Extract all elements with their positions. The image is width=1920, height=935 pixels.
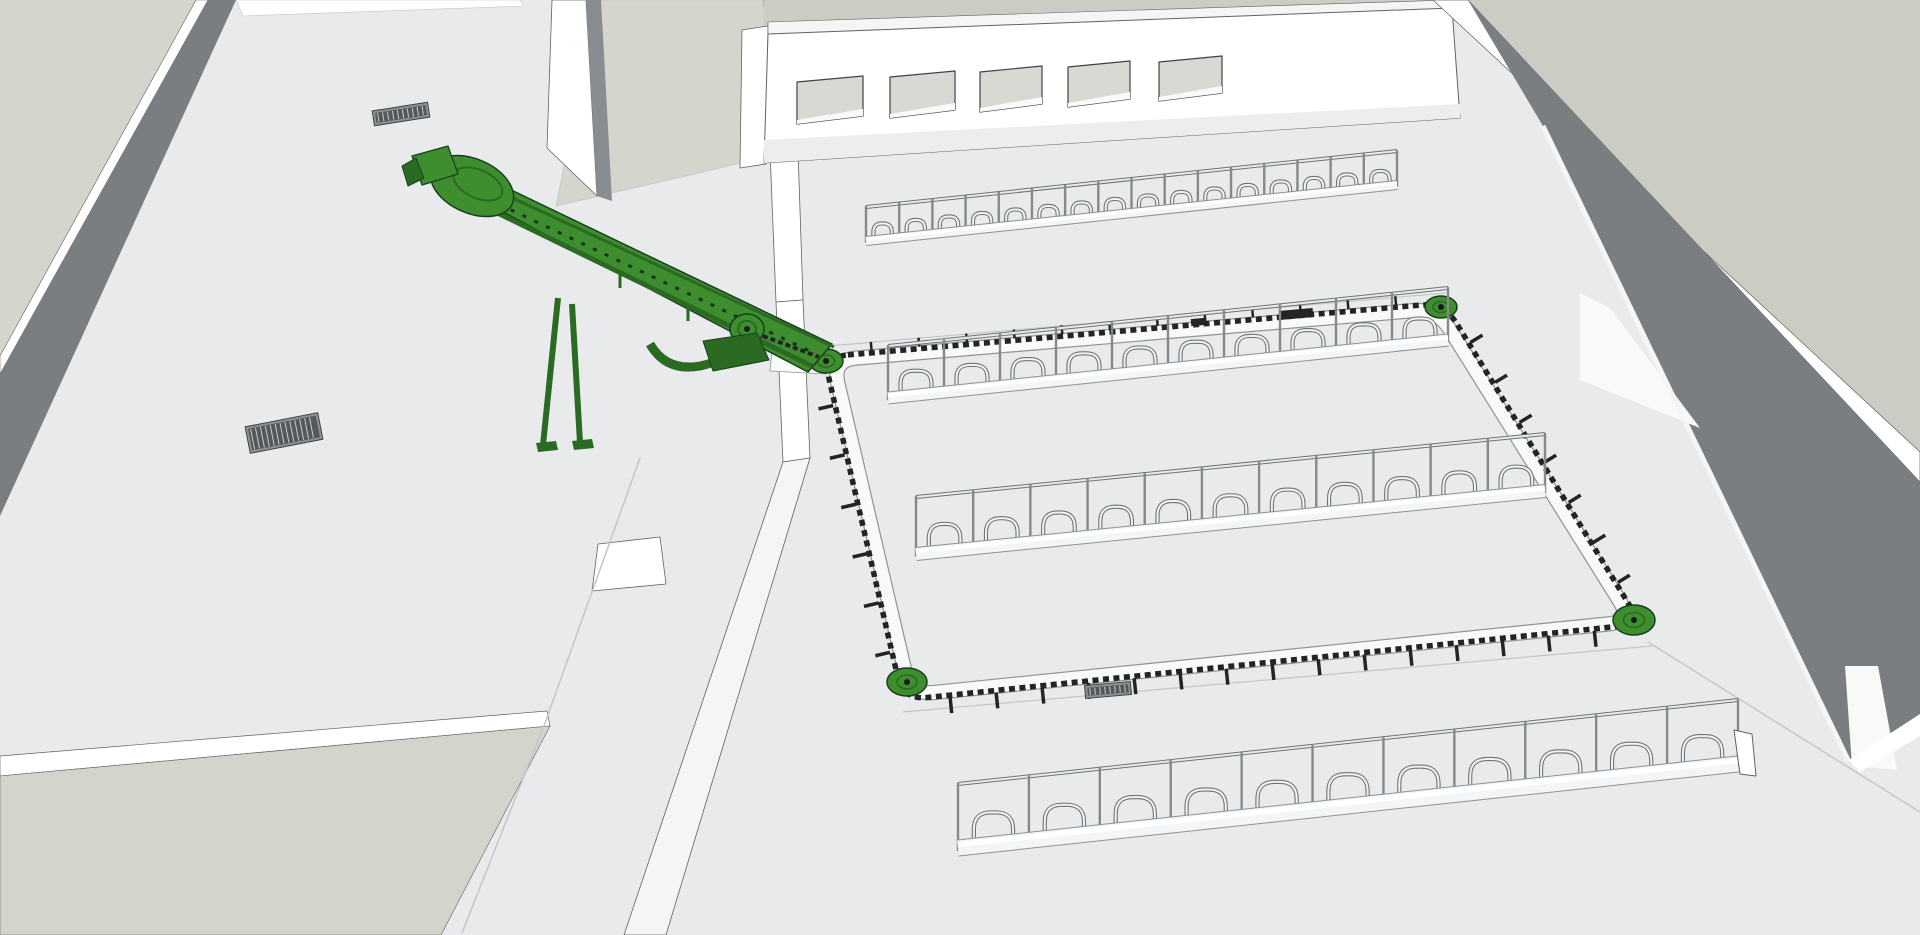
corner-wheel-4: [887, 668, 927, 696]
chain-flight: [1395, 296, 1396, 305]
chain-flight: [996, 692, 998, 708]
corner-wheel-3: [1613, 605, 1655, 635]
drain-grate-slat: [1100, 687, 1101, 694]
corner-wheel-2: [1425, 296, 1457, 318]
drain-grate-slat: [1120, 685, 1121, 692]
model-viewport[interactable]: [0, 0, 1920, 935]
alley-step: [592, 537, 666, 591]
drain-grate-slat: [1115, 686, 1116, 693]
drain-grate-slat: [1105, 687, 1106, 694]
corner-wheel-hub: [823, 358, 829, 364]
drain-grate-slat: [1110, 686, 1111, 693]
chain-flight: [1548, 636, 1550, 652]
chain-flight: [1226, 669, 1228, 685]
drain-grate-slat: [1090, 688, 1091, 695]
corner-wheel-hub: [1438, 304, 1444, 310]
conveyor-part-17: [744, 326, 750, 332]
chain-flight: [1272, 664, 1274, 680]
chain-flight: [1502, 640, 1504, 656]
chain-flight: [1134, 678, 1136, 694]
chain-flight: [1410, 650, 1412, 666]
chain-flight: [1364, 655, 1366, 671]
chain-flight: [950, 697, 952, 713]
chain-tensioner-block-2: [1191, 318, 1206, 326]
front-wall-gable-left: [740, 26, 768, 168]
chain-flight: [1456, 645, 1458, 661]
corner-wheel-hub: [1631, 617, 1637, 623]
corner-wheel-hub: [904, 679, 910, 685]
drain-grate-slat: [1095, 688, 1096, 695]
chain-flight: [1348, 300, 1349, 309]
chain-flight: [1594, 631, 1596, 647]
chain-flight: [1180, 673, 1182, 689]
chain-flight: [1318, 659, 1320, 675]
drain-grate-slat: [1125, 685, 1126, 692]
chain-flight: [871, 342, 872, 351]
chain-flight: [1042, 688, 1044, 704]
barn-3d-scene[interactable]: [0, 0, 1920, 935]
